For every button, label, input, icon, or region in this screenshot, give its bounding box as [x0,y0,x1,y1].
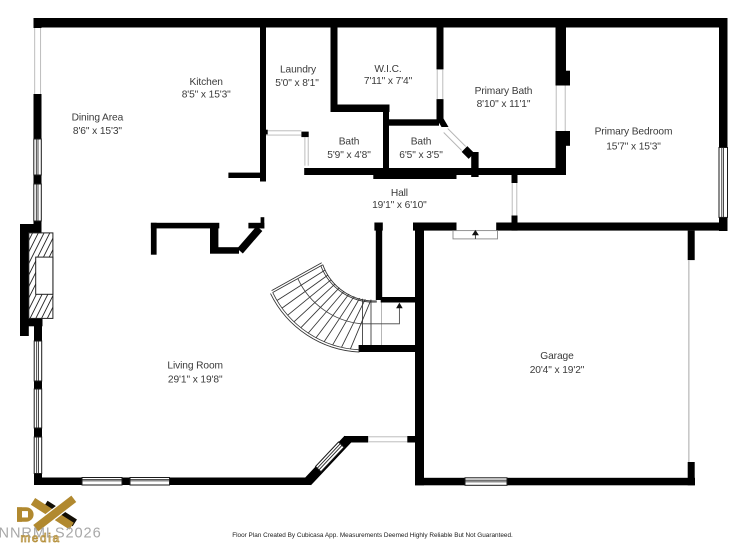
svg-text:Floor Plan Created By Cubicasa: Floor Plan Created By Cubicasa App. Meas… [232,532,513,539]
svg-text:Bath: Bath [411,136,432,147]
svg-text:5'0" x 8'1": 5'0" x 8'1" [275,78,319,89]
svg-text:Primary Bedroom: Primary Bedroom [595,127,673,138]
svg-text:20'4" x 19'2": 20'4" x 19'2" [530,365,585,376]
svg-text:15'7" x 15'3": 15'7" x 15'3" [606,141,661,152]
svg-text:8'6" x 15'3": 8'6" x 15'3" [73,126,122,137]
svg-text:6'5" x 3'5": 6'5" x 3'5" [399,150,443,161]
svg-text:7'11" x 7'4": 7'11" x 7'4" [364,76,413,87]
svg-text:Dining Area: Dining Area [72,113,124,124]
svg-text:Living Room: Living Room [167,361,223,372]
svg-text:media: media [21,533,61,545]
svg-text:5'9" x 4'8": 5'9" x 4'8" [327,150,371,161]
svg-text:Hall: Hall [391,188,408,199]
svg-text:8'5" x 15'3": 8'5" x 15'3" [182,89,231,100]
svg-text:Bath: Bath [339,136,360,147]
svg-text:Garage: Garage [540,351,574,362]
svg-text:8'10" x 11'1": 8'10" x 11'1" [477,99,531,110]
svg-text:W.I.C.: W.I.C. [374,64,401,75]
svg-text:Kitchen: Kitchen [190,77,223,88]
svg-text:19'1" x 6'10": 19'1" x 6'10" [372,200,427,211]
svg-text:Primary Bath: Primary Bath [475,86,533,97]
svg-text:Laundry: Laundry [280,65,317,76]
svg-text:29'1" x 19'8": 29'1" x 19'8" [168,375,223,386]
